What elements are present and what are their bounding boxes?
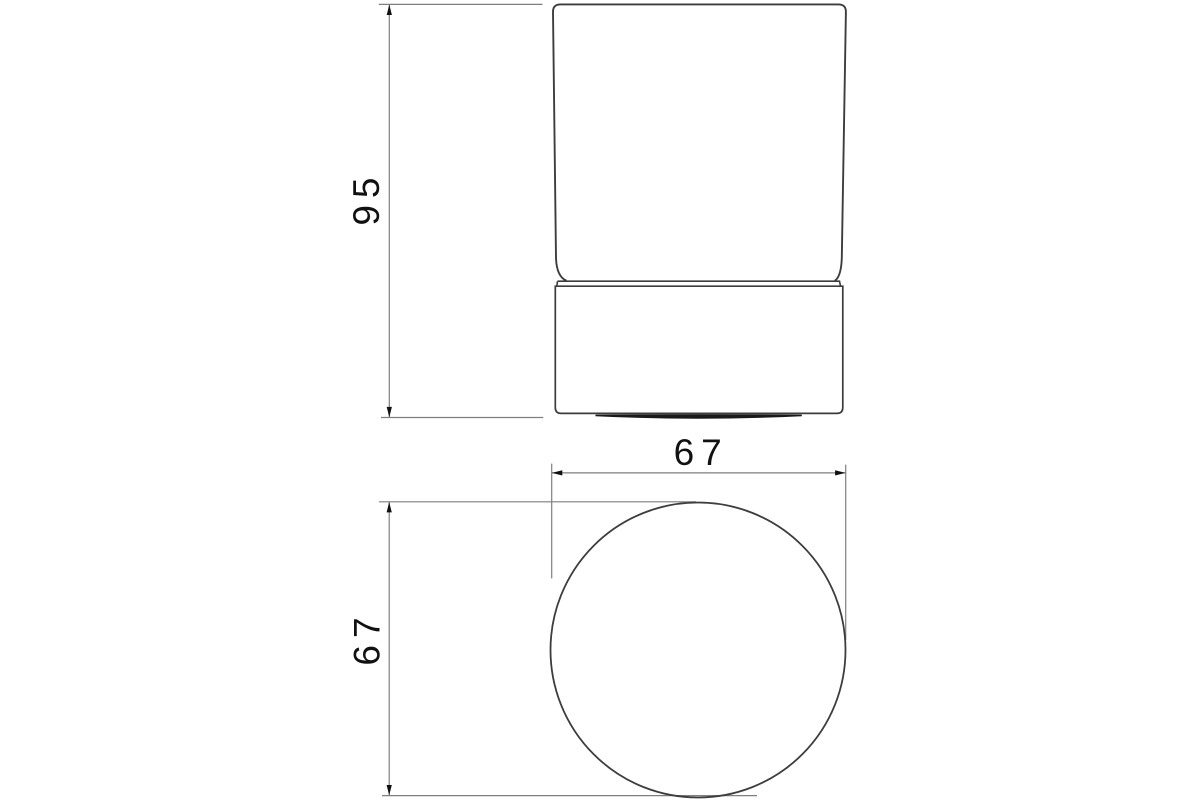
svg-text:67: 67	[674, 432, 729, 473]
svg-text:95: 95	[346, 171, 387, 226]
svg-text:67: 67	[346, 610, 387, 665]
